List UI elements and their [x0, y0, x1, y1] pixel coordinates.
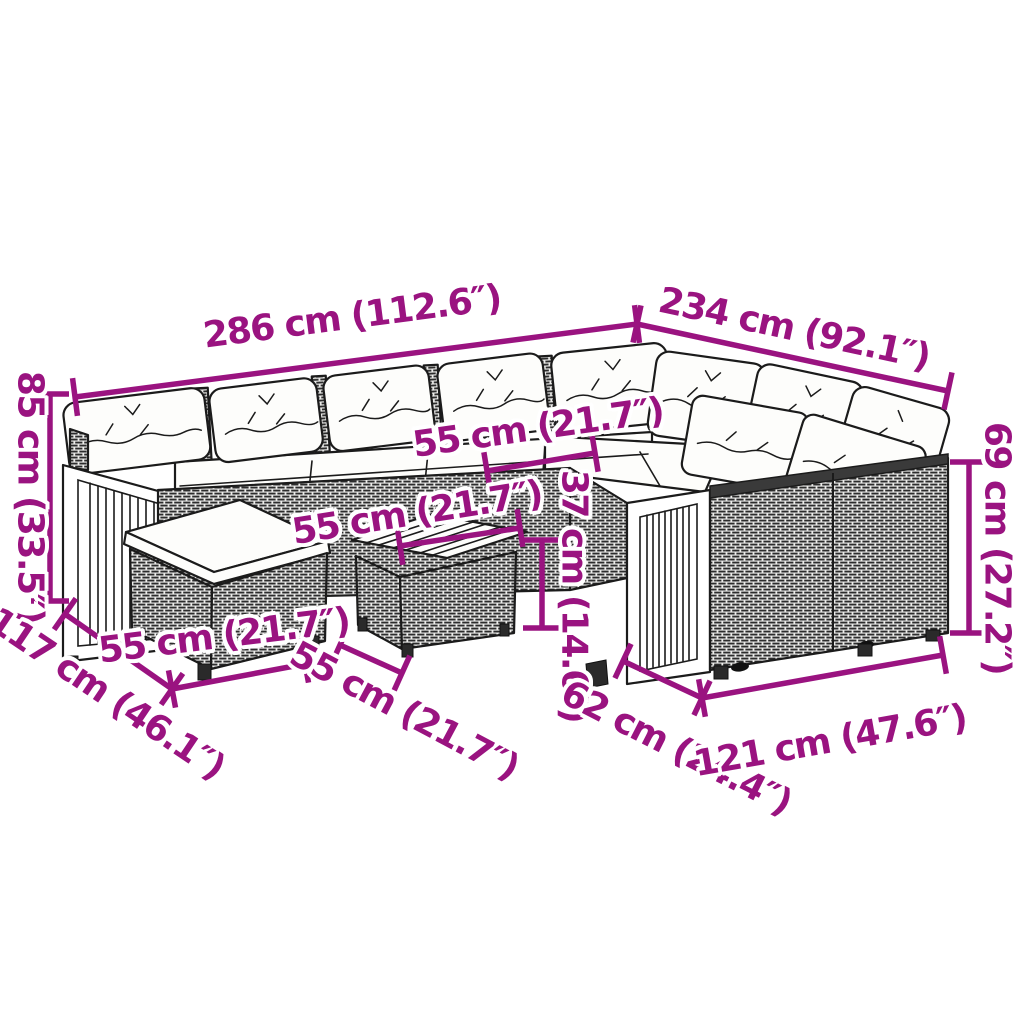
dim-label-69cm: 69 cm (27.2″)	[977, 422, 1018, 674]
dim-label-85cm: 85 cm (33.5″)	[10, 371, 51, 623]
diagram-canvas: 286 cm (112.6″) 234 cm (92.1″) 85 cm (33…	[0, 0, 1024, 1024]
